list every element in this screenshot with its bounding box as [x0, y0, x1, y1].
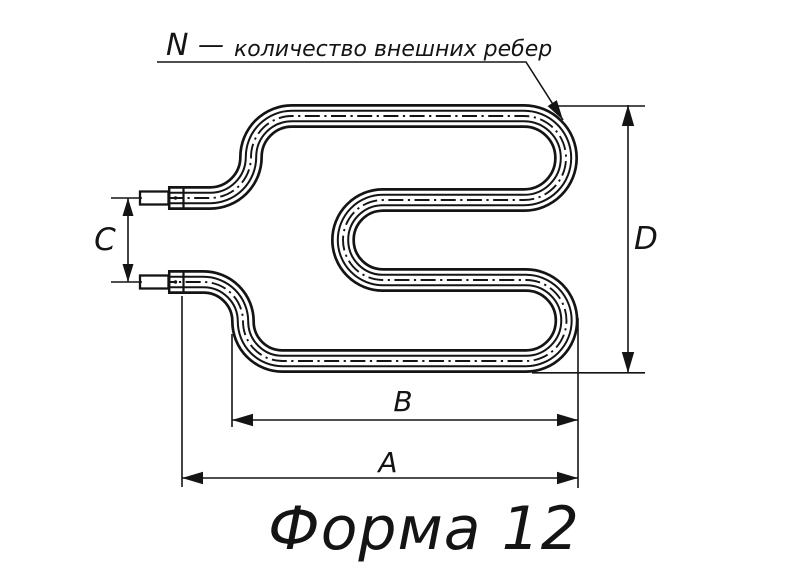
heating-element-tube [140, 116, 566, 361]
dim-c-arrowhead-bottom [123, 264, 134, 282]
dim-c-label: C [94, 222, 116, 258]
callout-symbol: N [166, 28, 188, 63]
tube-center-dot-bottom [174, 280, 177, 283]
callout-description: количество внешних ребер [234, 37, 552, 62]
dim-d-arrowhead-top [622, 105, 634, 126]
dim-a-arrowhead-left [182, 472, 203, 484]
tube-center-dot-top [174, 196, 177, 199]
tube-outer-contour [168, 116, 566, 361]
dimension-c: C [94, 198, 142, 282]
dim-d-arrowhead-bottom [622, 352, 634, 373]
terminal-pin-top [140, 192, 169, 205]
tube-inner-wall [168, 116, 566, 361]
dim-b-label: B [393, 385, 412, 418]
dimension-d: D [532, 105, 658, 373]
heating-element-drawing: C D B A N — количество внешних ребер Фор… [0, 0, 800, 565]
dim-a-label: A [376, 446, 397, 479]
dim-b-arrowhead-right [557, 414, 578, 426]
dim-d-label: D [634, 221, 658, 257]
technical-drawing-page: C D B A N — количество внешних ребер Фор… [0, 0, 800, 565]
drawing-title: Форма 12 [268, 494, 580, 564]
tube-inner-bore [168, 116, 566, 361]
dim-c-arrowhead-top [123, 198, 134, 216]
dim-a-arrowhead-right [557, 472, 578, 484]
tube-centerline [168, 116, 566, 361]
dim-b-arrowhead-left [232, 414, 253, 426]
terminal-pin-bottom [140, 276, 169, 289]
dimension-b: B [232, 318, 578, 488]
tube-bore [168, 116, 566, 361]
callout-dash: — [198, 30, 224, 60]
